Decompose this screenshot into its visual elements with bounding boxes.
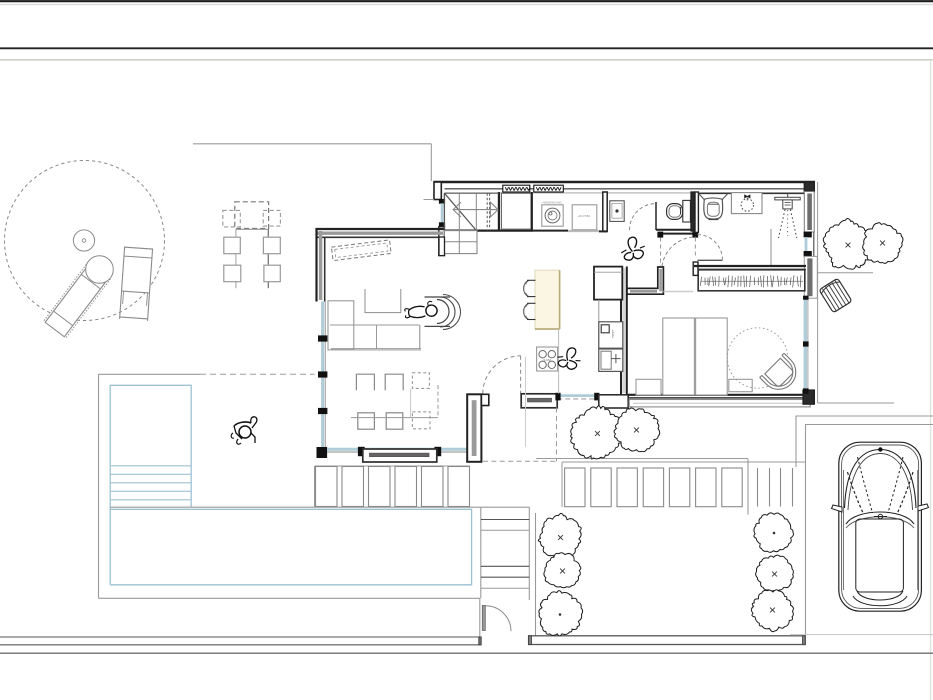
svg-text:+AVA+: +AVA+ [611, 329, 615, 338]
svg-text:+W-/07/BC: +W-/07/BC [578, 214, 591, 218]
svg-text:+WASHING+M/C: +WASHING+M/C [542, 201, 562, 205]
svg-text:3-CM: 3-CM [543, 358, 551, 362]
